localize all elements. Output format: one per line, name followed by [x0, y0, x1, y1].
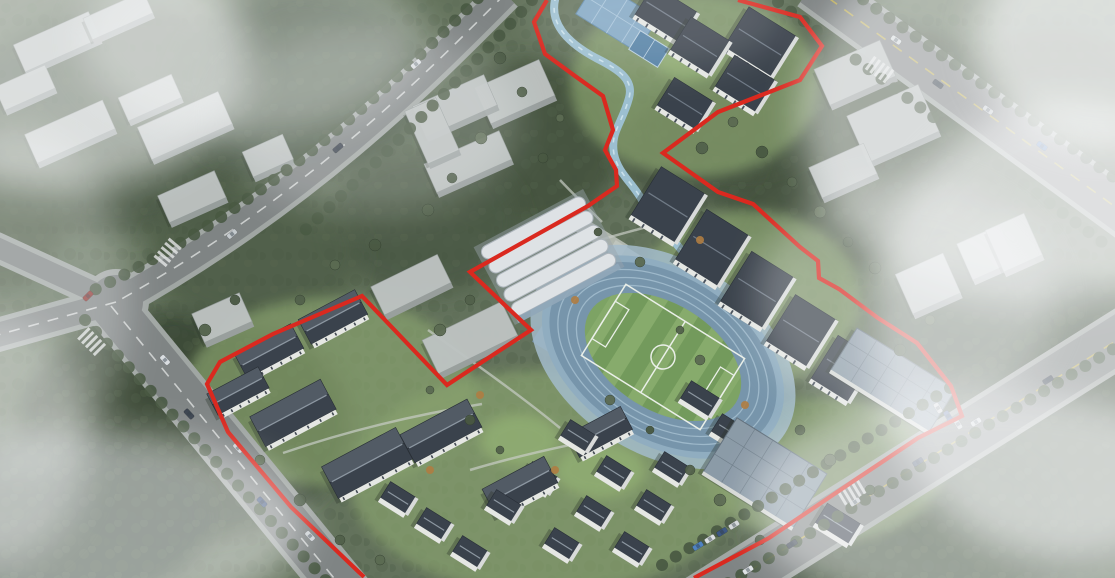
aerial-scene-canvas: [0, 0, 1115, 578]
masterplan-rendering: [0, 0, 1115, 578]
fog-layer: [0, 0, 1115, 578]
atmospheric-haze: [0, 0, 1115, 578]
